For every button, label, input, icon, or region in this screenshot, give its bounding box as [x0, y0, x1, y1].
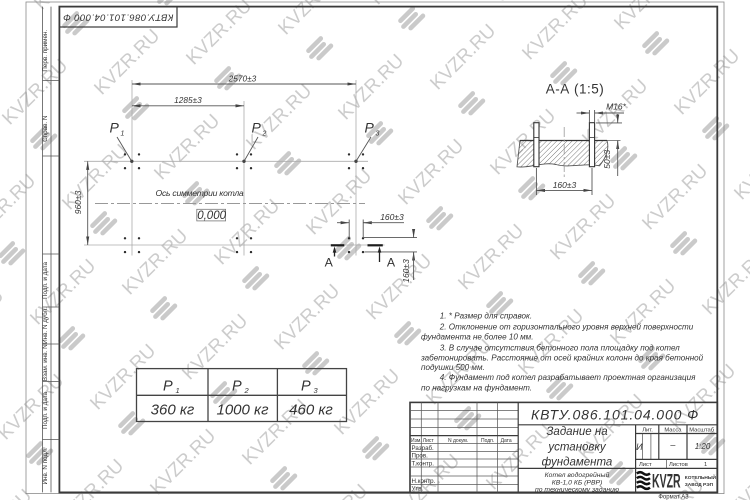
svg-text:50±3: 50±3	[602, 150, 612, 169]
svg-text:Лист: Лист	[423, 438, 435, 444]
svg-text:P: P	[301, 379, 311, 395]
svg-text:160±3: 160±3	[380, 212, 404, 222]
svg-text:Н.контр.: Н.контр.	[412, 478, 436, 485]
svg-text:Т.контр.: Т.контр.	[412, 460, 435, 467]
svg-text:А: А	[387, 255, 396, 269]
svg-text:фундамента: фундамента	[542, 457, 613, 469]
svg-text:КВТУ.086.101.04.000 Ф: КВТУ.086.101.04.000 Ф	[63, 11, 174, 22]
svg-text:4. Фундамент под котел разраб: 4. Фундамент под котел разрабатывает про…	[440, 373, 696, 382]
svg-text:Справ. N: Справ. N	[42, 115, 49, 142]
svg-text:Разраб.: Разраб.	[412, 445, 435, 452]
svg-text:–: –	[670, 440, 675, 450]
svg-text:960±3: 960±3	[73, 190, 83, 214]
svg-text:Лист: Лист	[639, 462, 652, 468]
svg-text:Инв. N подл.: Инв. N подл.	[42, 447, 49, 484]
svg-text:360 кг: 360 кг	[151, 402, 195, 419]
svg-text:ЗАВОД РЭП: ЗАВОД РЭП	[685, 482, 714, 488]
svg-text:Перв. примен.: Перв. примен.	[42, 30, 49, 72]
svg-text:160±3: 160±3	[401, 259, 411, 283]
svg-text:забетонировать. Расстояние от: забетонировать. Расстояние от осей крайн…	[420, 353, 704, 362]
svg-text:460 кг: 460 кг	[289, 402, 333, 419]
svg-text:160±3: 160±3	[553, 180, 577, 190]
svg-text:Ось симметрии котла: Ось симметрии котла	[156, 188, 244, 198]
svg-text:Изм.: Изм.	[411, 438, 422, 444]
svg-text:Подп.: Подп.	[481, 438, 494, 444]
svg-text:P: P	[110, 120, 120, 136]
svg-text:2: 2	[262, 131, 267, 138]
svg-text:М16*: М16*	[606, 102, 627, 112]
svg-text:1: 1	[704, 462, 707, 468]
svg-text:А: А	[325, 255, 334, 269]
svg-text:Котел водогрейный: Котел водогрейный	[545, 471, 610, 479]
svg-text:установку: установку	[547, 441, 607, 453]
svg-text:3: 3	[376, 131, 380, 138]
svg-text:Подп. и дата: Подп. и дата	[42, 391, 49, 429]
svg-text:Листов: Листов	[669, 462, 688, 468]
svg-text:по нагрузкам на фундамент.: по нагрузкам на фундамент.	[421, 383, 532, 392]
svg-text:Задание на: Задание на	[546, 426, 607, 438]
svg-text:И: И	[636, 442, 643, 452]
svg-text:по техническому заданию: по техническому заданию	[535, 485, 619, 493]
svg-text:Взам. инв. N: Взам. инв. N	[42, 344, 49, 381]
svg-text:2: 2	[244, 386, 250, 395]
svg-text:1:20: 1:20	[695, 442, 711, 451]
svg-text:подушки 500 мм.: подушки 500 мм.	[421, 363, 485, 372]
svg-text:3. В случае отсутствия бетонн: 3. В случае отсутствия бетонного пола пл…	[440, 343, 680, 352]
svg-text:N докум.: N докум.	[448, 438, 468, 444]
svg-text:фундамента не более 10 мм.: фундамента не более 10 мм.	[421, 333, 533, 342]
svg-text:1285±3: 1285±3	[174, 95, 202, 105]
svg-text:1. * Размер для справок.: 1. * Размер для справок.	[440, 312, 532, 321]
svg-text:P: P	[252, 120, 262, 136]
svg-text:KVZR: KVZR	[652, 471, 681, 492]
svg-text:2. Отклонение от горизонтальн: 2. Отклонение от горизонтального уровня …	[439, 323, 694, 332]
svg-text:1: 1	[176, 386, 180, 395]
svg-text:Масса: Масса	[664, 427, 682, 433]
svg-text:Лит.: Лит.	[642, 427, 653, 433]
svg-text:1000 кг: 1000 кг	[216, 402, 269, 419]
svg-text:А-А (1:5): А-А (1:5)	[546, 82, 605, 97]
svg-text:Подп. и дата: Подп. и дата	[42, 261, 49, 299]
svg-text:P: P	[365, 120, 375, 136]
svg-text:P: P	[163, 379, 173, 395]
svg-text:P: P	[232, 379, 242, 395]
svg-text:Инв. N дубл.: Инв. N дубл.	[41, 307, 49, 344]
svg-text:1: 1	[121, 131, 125, 138]
svg-text:Утв.: Утв.	[412, 486, 424, 493]
svg-text:Масштаб: Масштаб	[689, 427, 714, 433]
svg-text:2570±3: 2570±3	[228, 74, 257, 84]
svg-text:Дата: Дата	[501, 438, 512, 444]
svg-text:0,000: 0,000	[197, 210, 226, 222]
svg-text:Пров.: Пров.	[412, 453, 429, 460]
svg-text:Формат А3: Формат А3	[658, 494, 689, 500]
svg-text:КВТУ.086.101.04.000 Ф: КВТУ.086.101.04.000 Ф	[531, 407, 699, 423]
